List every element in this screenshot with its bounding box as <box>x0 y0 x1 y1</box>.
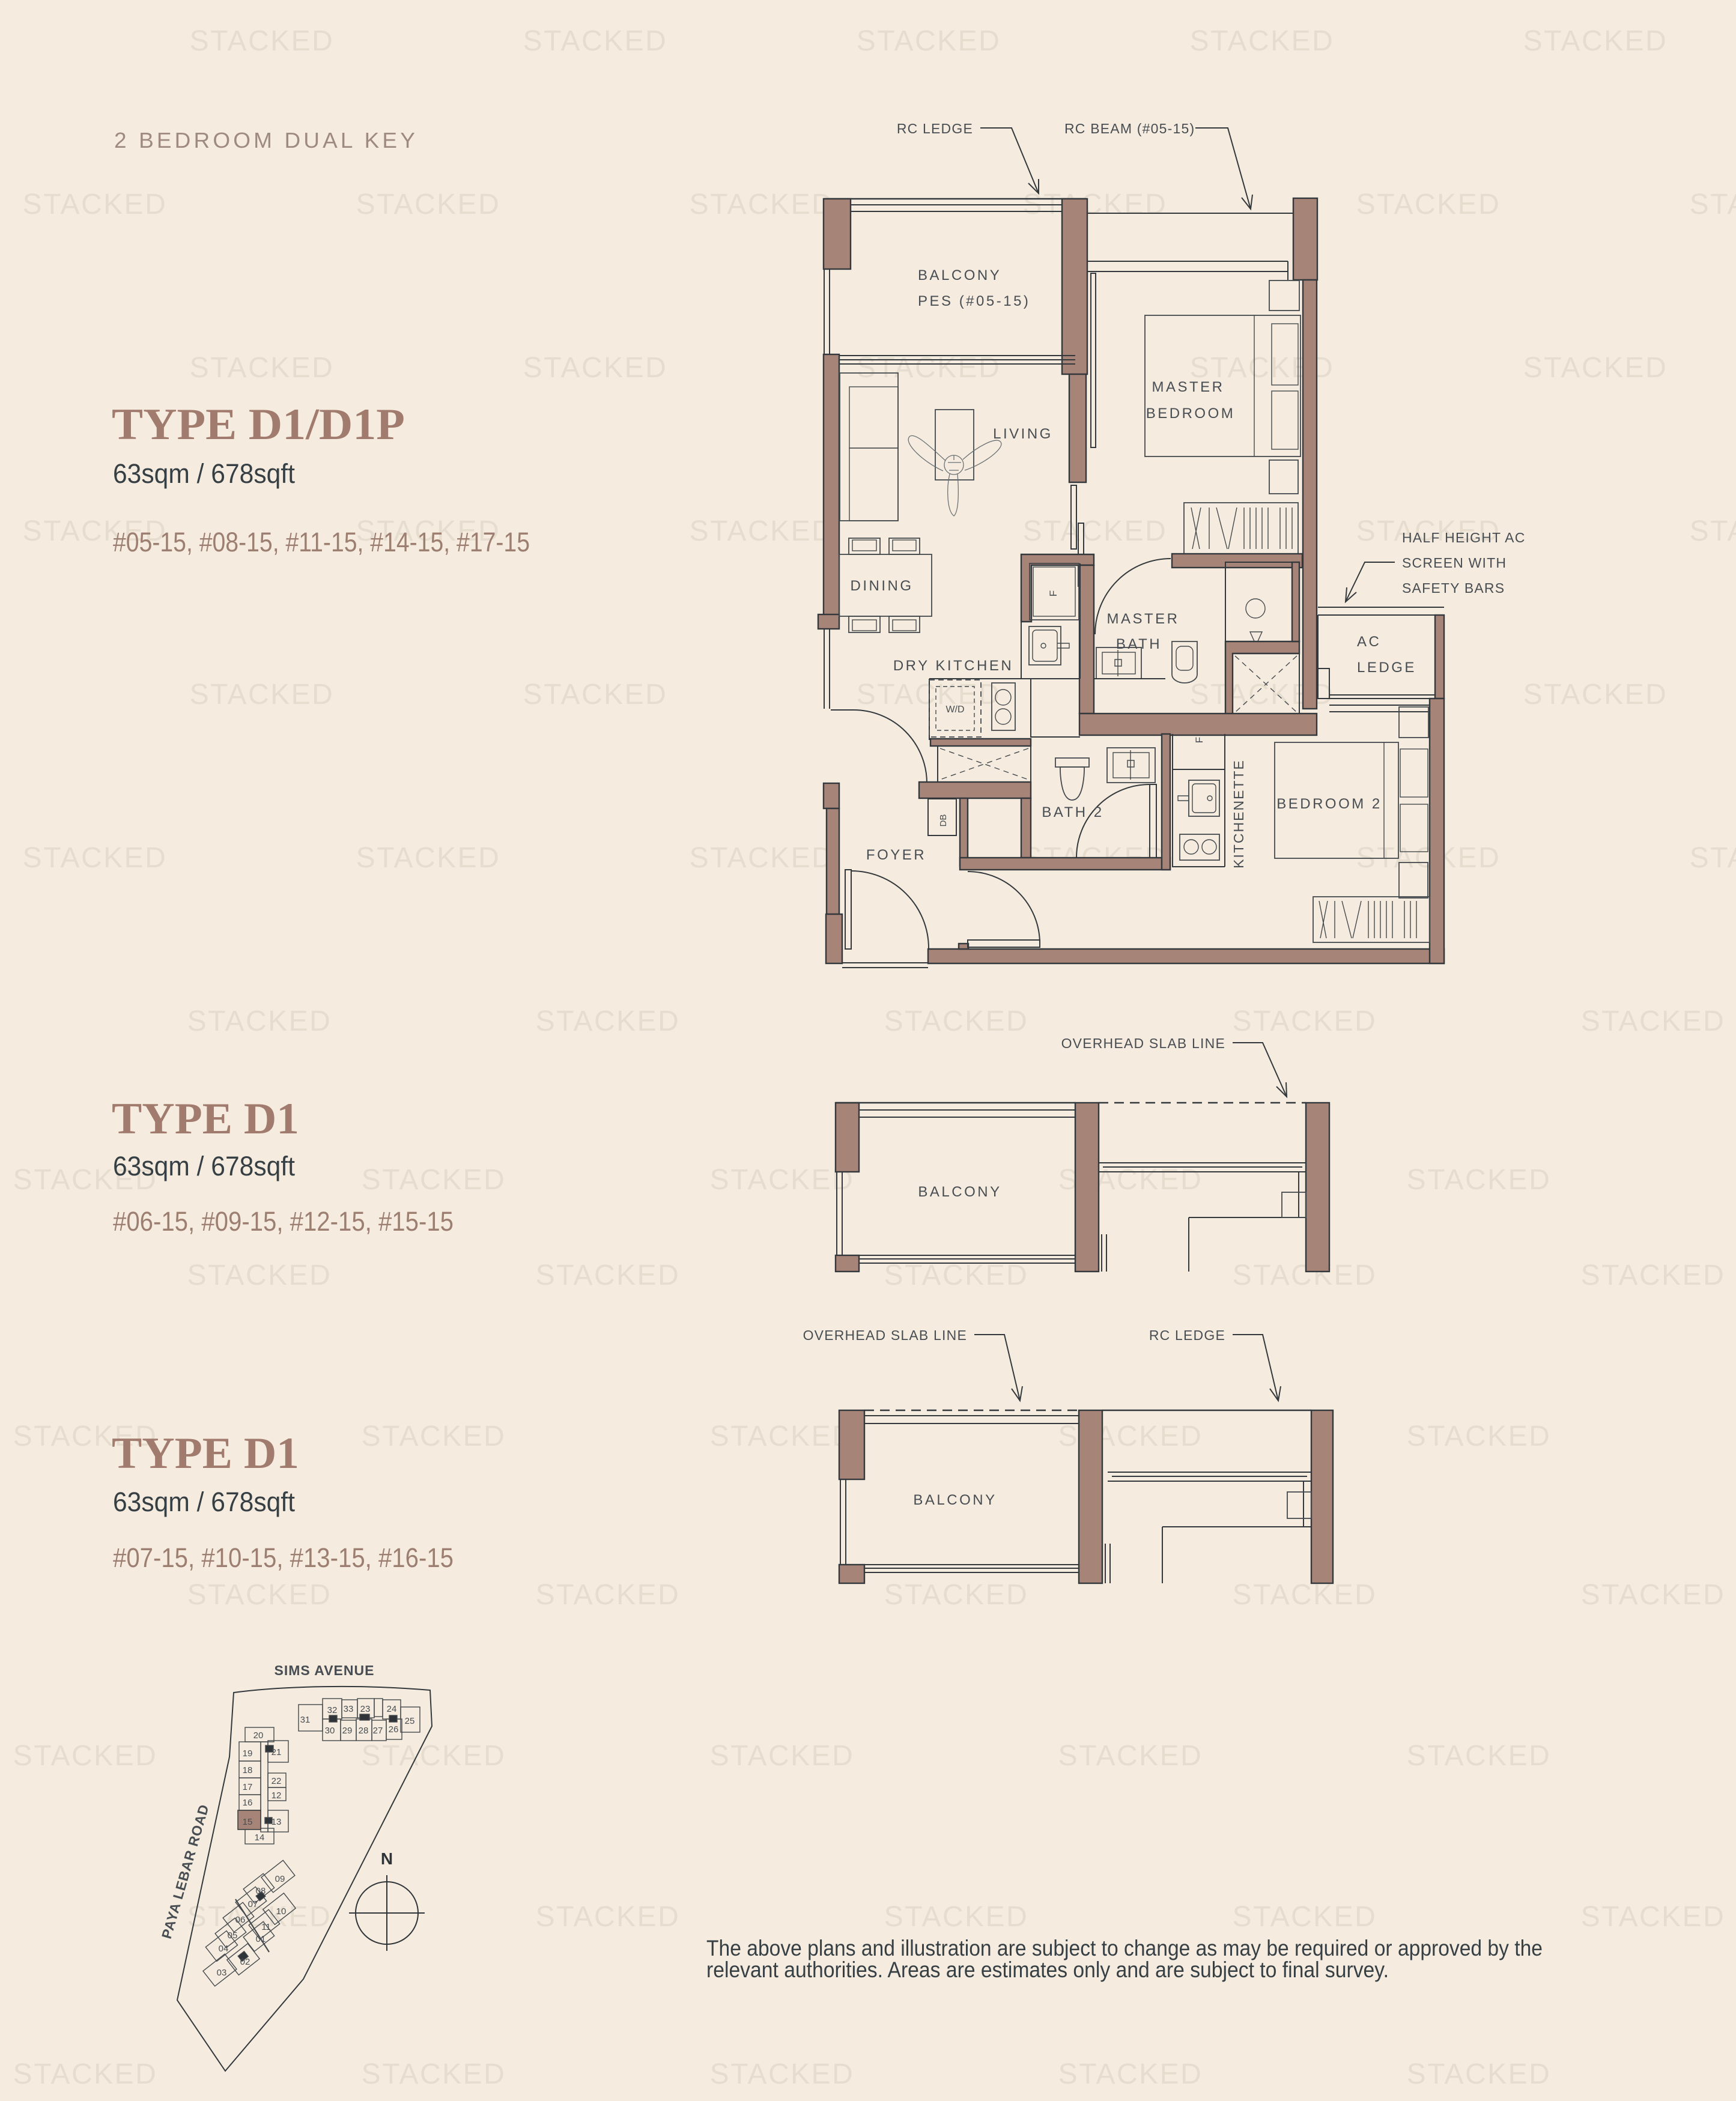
svg-text:STACKED: STACKED <box>690 515 834 547</box>
svg-text:RC LEDGE: RC LEDGE <box>897 121 973 136</box>
svg-text:STACKED: STACKED <box>536 1005 681 1037</box>
svg-text:BATH 2: BATH 2 <box>1042 804 1103 820</box>
svg-text:STACKED: STACKED <box>1407 1420 1552 1452</box>
svg-text:F: F <box>1048 590 1059 596</box>
svg-text:STACKED: STACKED <box>690 189 834 220</box>
svg-text:STACKED: STACKED <box>857 352 1001 384</box>
svg-text:13: 13 <box>272 1817 282 1827</box>
svg-text:RC BEAM (#05-15): RC BEAM (#05-15) <box>1064 121 1195 136</box>
svg-text:BALCONY: BALCONY <box>918 1184 1001 1200</box>
svg-text:08: 08 <box>256 1886 266 1896</box>
svg-text:30: 30 <box>325 1726 335 1736</box>
svg-text:04: 04 <box>219 1944 229 1954</box>
svg-text:07: 07 <box>248 1899 258 1909</box>
svg-text:BEDROOM: BEDROOM <box>1146 405 1236 422</box>
svg-text:AC: AC <box>1357 634 1381 650</box>
svg-text:63sqm / 678sqft: 63sqm / 678sqft <box>113 458 295 489</box>
svg-text:STACKED: STACKED <box>190 352 335 384</box>
svg-text:BALCONY: BALCONY <box>913 1492 997 1508</box>
svg-text:W/D: W/D <box>945 705 964 715</box>
svg-text:25: 25 <box>405 1716 415 1726</box>
svg-text:relevant authorities. Areas ar: relevant authorities. Areas are estimate… <box>706 1957 1389 1982</box>
svg-text:STACKED: STACKED <box>362 1420 506 1452</box>
svg-text:N: N <box>381 1849 393 1868</box>
svg-text:STACKED: STACKED <box>356 842 501 874</box>
svg-text:19: 19 <box>243 1748 253 1759</box>
svg-text:18: 18 <box>243 1765 253 1775</box>
svg-text:#07-15, #10-15, #13-15, #16-15: #07-15, #10-15, #13-15, #16-15 <box>113 1542 454 1573</box>
svg-text:LEDGE: LEDGE <box>1357 659 1416 676</box>
svg-text:TYPE D1: TYPE D1 <box>112 1429 299 1478</box>
svg-text:16: 16 <box>243 1798 253 1808</box>
svg-text:12: 12 <box>272 1790 282 1801</box>
svg-text:10: 10 <box>276 1906 287 1917</box>
svg-text:STACKED: STACKED <box>523 679 668 711</box>
svg-text:26: 26 <box>389 1724 399 1735</box>
svg-text:63sqm / 678sqft: 63sqm / 678sqft <box>113 1151 295 1181</box>
svg-text:STACKED: STACKED <box>710 2058 855 2090</box>
svg-text:06: 06 <box>235 1915 246 1925</box>
svg-text:#05-15, #08-15, #11-15, #14-15: #05-15, #08-15, #11-15, #14-15, #17-15 <box>113 527 530 557</box>
svg-text:2 BEDROOM DUAL KEY: 2 BEDROOM DUAL KEY <box>114 128 418 153</box>
svg-text:27: 27 <box>373 1726 383 1736</box>
svg-text:BEDROOM 2: BEDROOM 2 <box>1276 796 1382 812</box>
svg-text:STACKED: STACKED <box>23 842 168 874</box>
svg-text:STACKED: STACKED <box>1690 189 1736 220</box>
svg-text:29: 29 <box>342 1726 353 1736</box>
svg-text:32: 32 <box>327 1705 338 1715</box>
svg-text:STACKED: STACKED <box>536 1579 681 1611</box>
svg-text:63sqm / 678sqft: 63sqm / 678sqft <box>113 1487 295 1517</box>
svg-text:21: 21 <box>272 1747 282 1757</box>
svg-text:STACKED: STACKED <box>190 25 335 57</box>
svg-text:STACKED: STACKED <box>884 1901 1029 1933</box>
svg-text:20: 20 <box>253 1730 264 1741</box>
svg-text:STACKED: STACKED <box>710 1164 855 1196</box>
svg-text:22: 22 <box>272 1776 282 1786</box>
svg-text:STACKED: STACKED <box>1581 1260 1726 1291</box>
svg-text:STACKED: STACKED <box>536 1901 681 1933</box>
svg-text:STACKED: STACKED <box>884 1579 1029 1611</box>
svg-text:STACKED: STACKED <box>1058 2058 1203 2090</box>
svg-text:The above plans and illustrati: The above plans and illustration are sub… <box>706 1936 1543 1960</box>
svg-text:28: 28 <box>359 1726 369 1736</box>
svg-text:HALF HEIGHT AC: HALF HEIGHT AC <box>1402 530 1526 545</box>
svg-text:DB: DB <box>938 814 948 827</box>
svg-text:24: 24 <box>387 1704 397 1714</box>
svg-text:BALCONY: BALCONY <box>918 267 1001 283</box>
svg-text:STACKED: STACKED <box>857 25 1001 57</box>
svg-text:STACKED: STACKED <box>1407 2058 1552 2090</box>
svg-text:STACKED: STACKED <box>1523 352 1668 384</box>
svg-text:11: 11 <box>261 1922 271 1932</box>
svg-text:PES (#05-15): PES (#05-15) <box>918 293 1030 309</box>
svg-text:STACKED: STACKED <box>1058 1740 1203 1772</box>
svg-text:STACKED: STACKED <box>884 1005 1029 1037</box>
svg-text:STACKED: STACKED <box>362 2058 506 2090</box>
svg-text:OVERHEAD SLAB LINE: OVERHEAD SLAB LINE <box>1061 1035 1225 1051</box>
svg-text:09: 09 <box>275 1874 285 1884</box>
svg-text:DINING: DINING <box>851 578 914 594</box>
svg-text:STACKED: STACKED <box>1233 1901 1377 1933</box>
svg-text:31: 31 <box>300 1715 311 1725</box>
svg-text:STACKED: STACKED <box>523 352 668 384</box>
svg-text:KITCHENETTE: KITCHENETTE <box>1231 759 1246 869</box>
svg-text:STACKED: STACKED <box>884 1260 1029 1291</box>
svg-text:F: F <box>1194 737 1205 743</box>
svg-text:TYPE D1: TYPE D1 <box>112 1094 299 1144</box>
svg-text:BATH: BATH <box>1116 636 1162 652</box>
svg-text:SAFETY BARS: SAFETY BARS <box>1402 580 1505 596</box>
svg-text:#06-15, #09-15, #12-15, #15-15: #06-15, #09-15, #12-15, #15-15 <box>113 1206 454 1237</box>
svg-text:STACKED: STACKED <box>536 1260 681 1291</box>
svg-text:FOYER: FOYER <box>866 847 926 863</box>
svg-text:STACKED: STACKED <box>1690 842 1736 874</box>
svg-text:MASTER: MASTER <box>1106 611 1179 627</box>
svg-text:SCREEN WITH: SCREEN WITH <box>1402 555 1507 571</box>
svg-text:RC LEDGE: RC LEDGE <box>1149 1327 1225 1343</box>
svg-text:STACKED: STACKED <box>190 679 335 711</box>
svg-text:STACKED: STACKED <box>710 1420 855 1452</box>
svg-text:STACKED: STACKED <box>1233 1260 1377 1291</box>
svg-text:STACKED: STACKED <box>356 189 501 220</box>
svg-text:STACKED: STACKED <box>1023 515 1168 547</box>
svg-text:STACKED: STACKED <box>1690 515 1736 547</box>
svg-text:STACKED: STACKED <box>710 1740 855 1772</box>
svg-text:STACKED: STACKED <box>1356 189 1501 220</box>
svg-text:OVERHEAD SLAB LINE: OVERHEAD SLAB LINE <box>803 1327 967 1343</box>
svg-text:STACKED: STACKED <box>690 842 834 874</box>
svg-text:02: 02 <box>240 1957 250 1967</box>
svg-text:01: 01 <box>256 1934 266 1944</box>
svg-text:STACKED: STACKED <box>1581 1005 1726 1037</box>
svg-text:STACKED: STACKED <box>1190 25 1335 57</box>
svg-text:STACKED: STACKED <box>23 189 168 220</box>
svg-text:STACKED: STACKED <box>1523 679 1668 711</box>
svg-text:STACKED: STACKED <box>13 1740 158 1772</box>
svg-text:03: 03 <box>217 1968 227 1978</box>
svg-text:STACKED: STACKED <box>1581 1901 1726 1933</box>
svg-text:STACKED: STACKED <box>187 1260 332 1291</box>
svg-text:TYPE D1/D1P: TYPE D1/D1P <box>112 400 405 449</box>
svg-text:STACKED: STACKED <box>523 25 668 57</box>
svg-text:23: 23 <box>360 1704 371 1714</box>
svg-text:STACKED: STACKED <box>1407 1740 1552 1772</box>
svg-text:STACKED: STACKED <box>187 1579 332 1611</box>
svg-text:STACKED: STACKED <box>362 1164 506 1196</box>
svg-text:STACKED: STACKED <box>1523 25 1668 57</box>
svg-text:STACKED: STACKED <box>13 2058 158 2090</box>
svg-text:STACKED: STACKED <box>187 1005 332 1037</box>
svg-text:STACKED: STACKED <box>1233 1005 1377 1037</box>
svg-text:17: 17 <box>243 1782 253 1792</box>
svg-text:MASTER: MASTER <box>1152 379 1224 395</box>
svg-text:STACKED: STACKED <box>362 1740 506 1772</box>
svg-text:33: 33 <box>344 1704 354 1714</box>
svg-text:05: 05 <box>228 1930 238 1941</box>
svg-text:STACKED: STACKED <box>1233 1579 1377 1611</box>
svg-text:STACKED: STACKED <box>1581 1579 1726 1611</box>
svg-text:DRY KITCHEN: DRY KITCHEN <box>893 658 1013 674</box>
svg-text:STACKED: STACKED <box>1407 1164 1552 1196</box>
svg-text:15: 15 <box>243 1817 253 1827</box>
svg-text:LIVING: LIVING <box>993 426 1053 442</box>
svg-text:14: 14 <box>255 1833 265 1843</box>
svg-text:SIMS AVENUE: SIMS AVENUE <box>275 1663 375 1678</box>
